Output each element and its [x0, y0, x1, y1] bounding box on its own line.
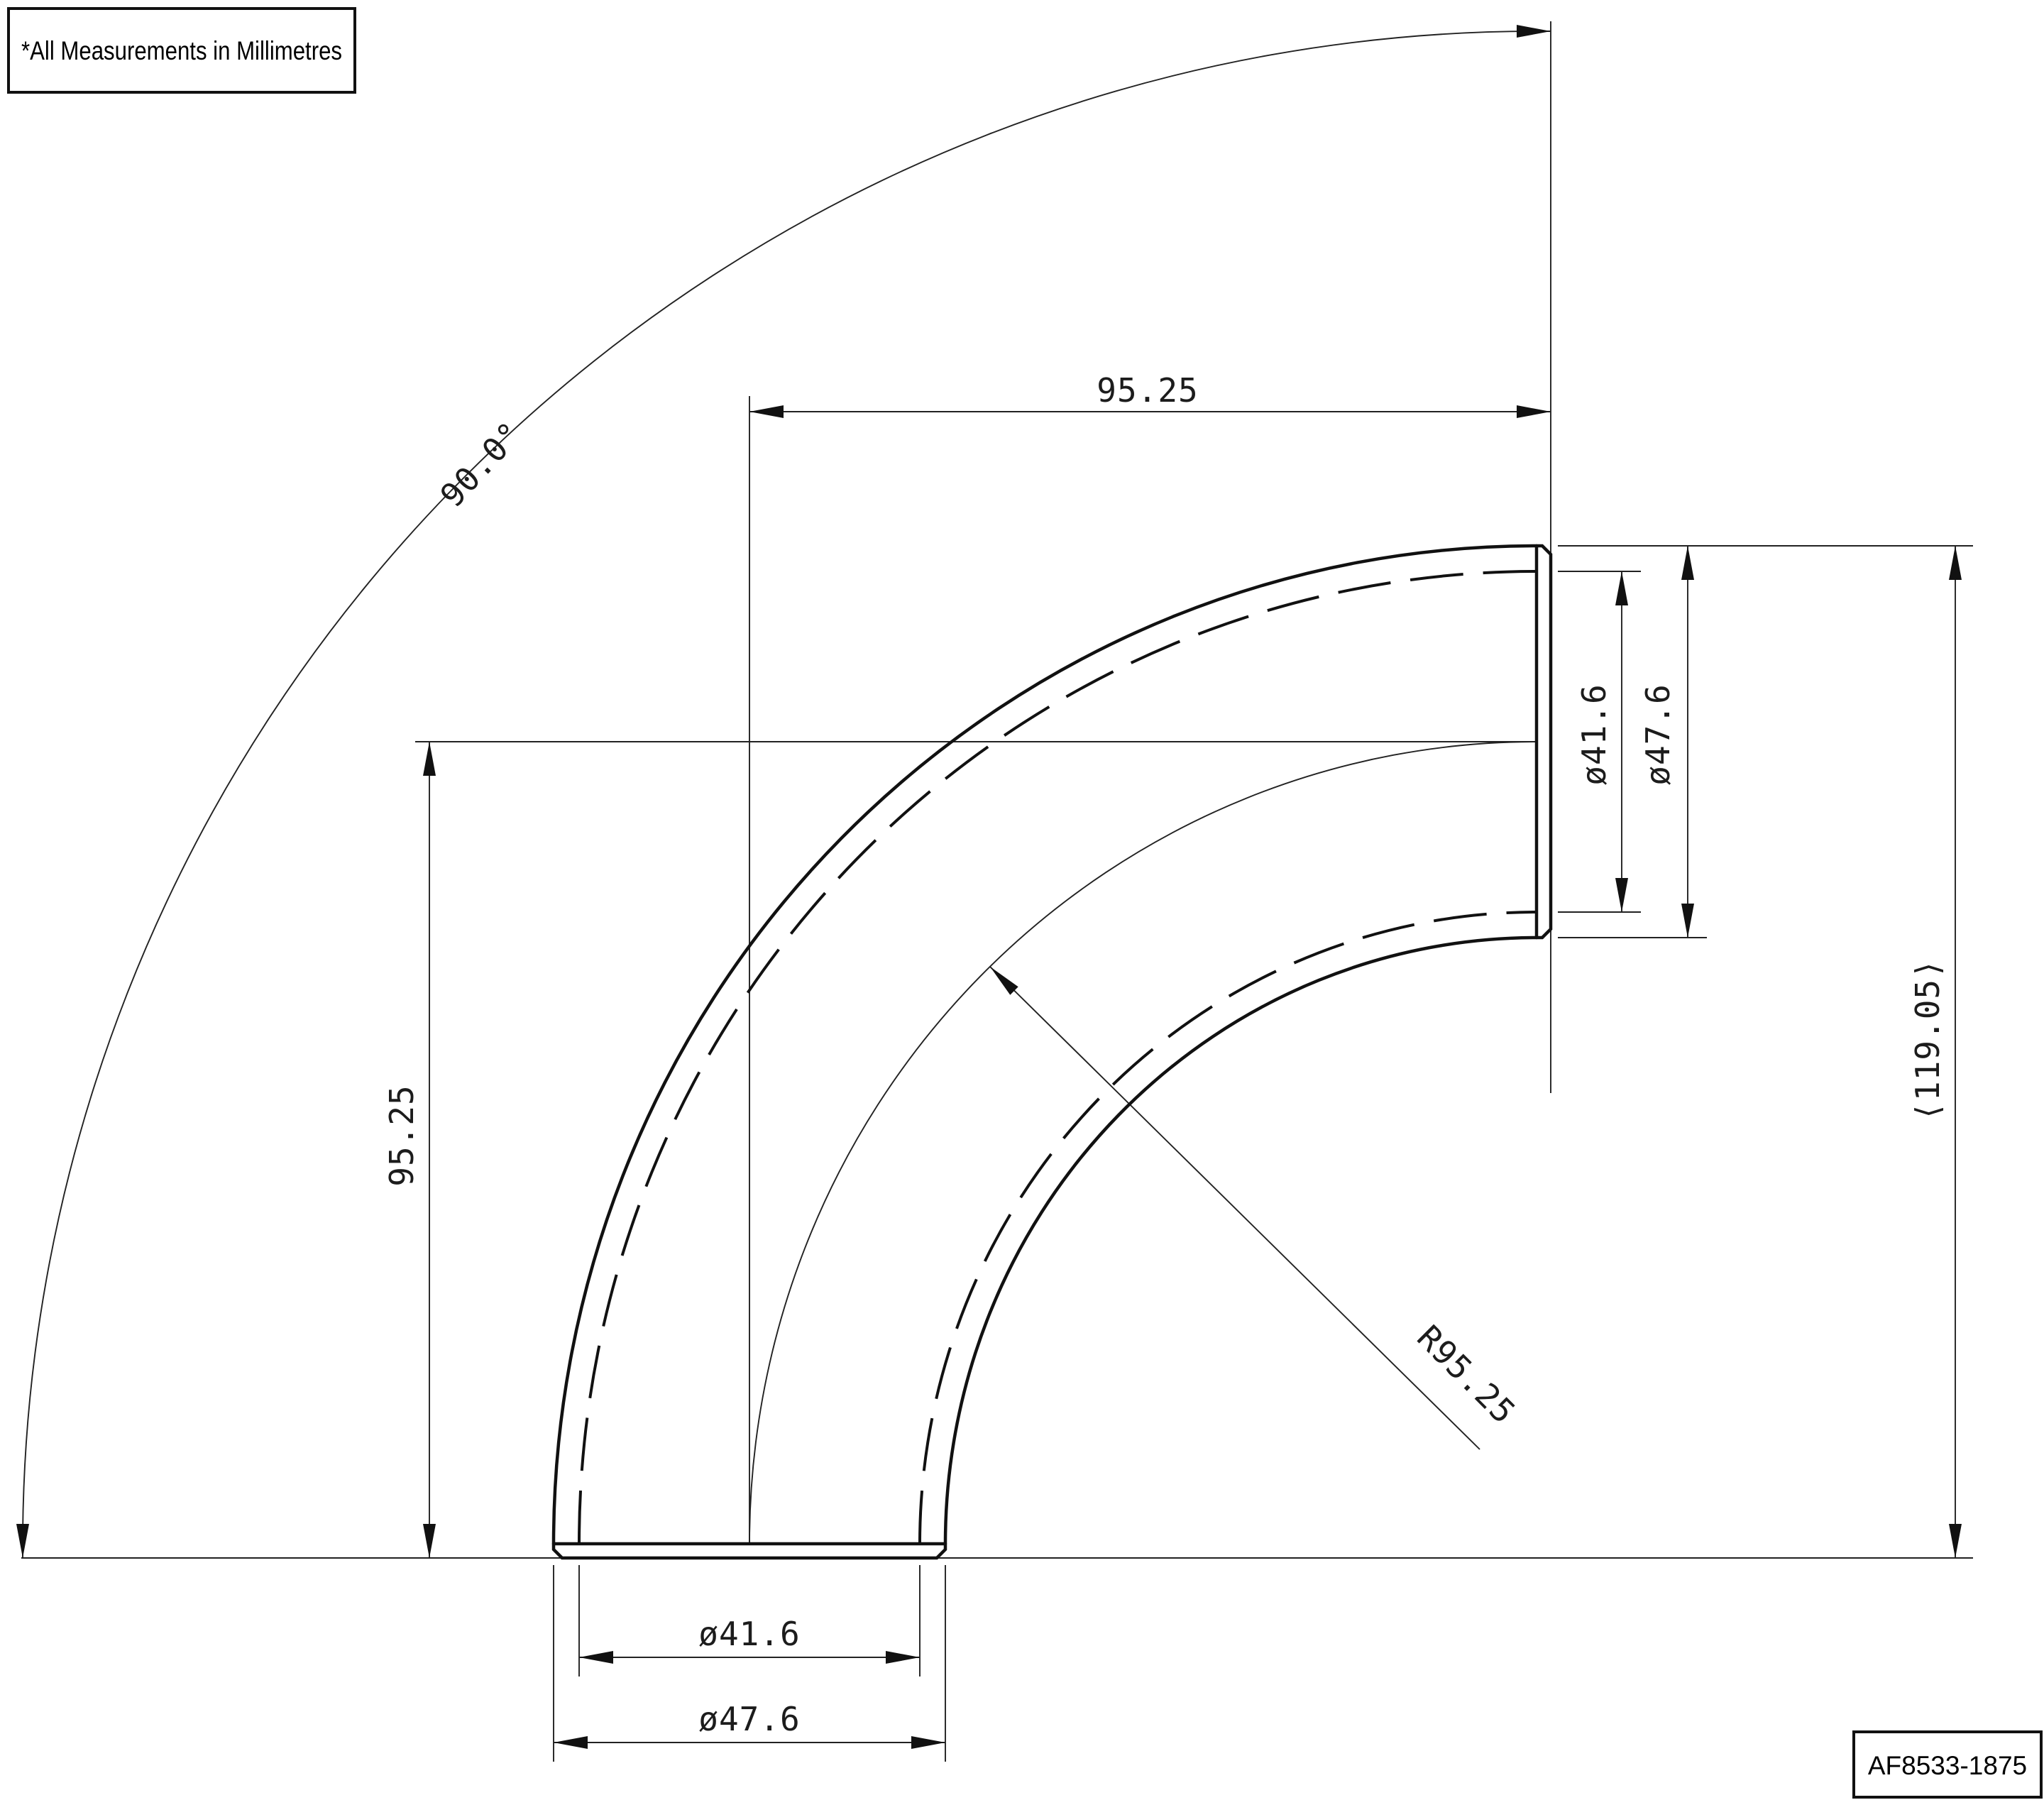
angle-dimension-arc [23, 31, 1551, 1558]
inlet-od-label: ø47.6 [698, 1700, 800, 1738]
dimension-lines [21, 21, 1973, 1762]
part-number-box: AF8533-1875 [1854, 1732, 2041, 1797]
bend-radius-label: R95.25 [1410, 1318, 1523, 1432]
elbow-inner-arc [945, 938, 1537, 1544]
angle-arc-bottom-arrow [16, 1524, 29, 1558]
inlet-end-face [554, 1544, 945, 1558]
units-note-text: *All Measurements in Millimetres [21, 36, 342, 65]
cad-drawing-canvas: 90.0° 95.25 95.25 R95.25 ø41.6 ø47.6 ⟨11… [0, 0, 2044, 1800]
inlet-id-label: ø41.6 [698, 1615, 800, 1653]
top-dimension-label: 95.25 [1097, 371, 1198, 410]
drawing-sheet: 90.0° 95.25 95.25 R95.25 ø41.6 ø47.6 ⟨11… [0, 0, 2044, 1800]
inlet-id-left-arrow [579, 1651, 613, 1664]
outlet-od-down-arrow [1681, 904, 1694, 938]
inlet-od-right-arrow [911, 1736, 945, 1749]
bend-centerline-arc [749, 742, 1537, 1544]
units-note-box: *All Measurements in Millimetres [9, 9, 355, 92]
left-dim-up-arrow [423, 742, 436, 776]
left-dimension-label: 95.25 [383, 1085, 421, 1186]
top-dim-left-arrow [749, 405, 784, 418]
angle-arc-top-arrow [1517, 25, 1551, 38]
outlet-od-label: ø47.6 [1639, 684, 1677, 785]
overall-up-arrow [1949, 546, 1962, 580]
angle-dimension-label: 90.0° [433, 414, 530, 515]
outlet-end-face [1537, 546, 1551, 938]
bore-outer-hidden-arc [579, 571, 1537, 1544]
bore-inner-hidden-arc [920, 912, 1537, 1544]
dimension-labels: 90.0° 95.25 95.25 R95.25 ø41.6 ø47.6 ⟨11… [383, 371, 1947, 1738]
inlet-id-right-arrow [886, 1651, 920, 1664]
outlet-od-up-arrow [1681, 546, 1694, 580]
left-dim-down-arrow [423, 1524, 436, 1558]
radius-leader-arrow [990, 967, 1018, 995]
outlet-id-label: ø41.6 [1575, 684, 1613, 785]
elbow-outer-arc [554, 546, 1537, 1544]
inlet-od-left-arrow [554, 1736, 588, 1749]
outlet-id-up-arrow [1615, 571, 1628, 605]
outlet-id-down-arrow [1615, 878, 1628, 912]
part-number-text: AF8533-1875 [1868, 1751, 2027, 1780]
elbow-body-outline [554, 546, 1551, 1558]
top-dim-right-arrow [1517, 405, 1551, 418]
hidden-bore-lines [579, 571, 1537, 1544]
bend-radius-leader-line [990, 967, 1480, 1449]
overall-down-arrow [1949, 1524, 1962, 1558]
arrowheads [16, 25, 1962, 1749]
overall-reference-label: ⟨119.05⟩ [1908, 958, 1947, 1121]
